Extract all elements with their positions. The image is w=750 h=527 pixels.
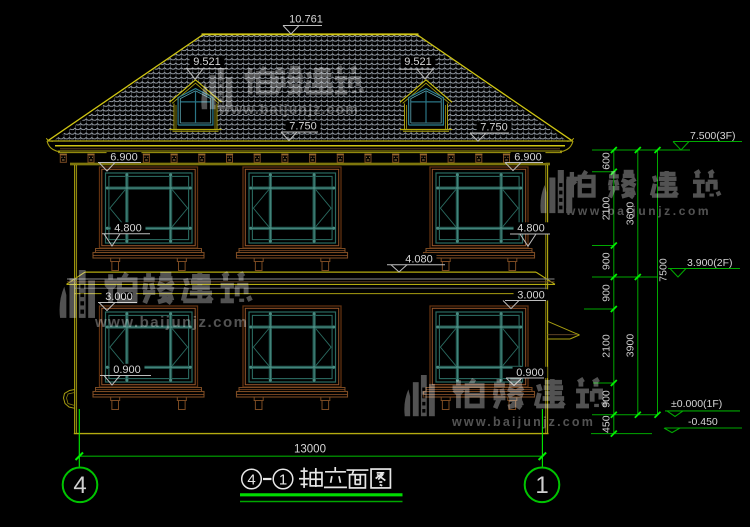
svg-text:7.500(3F): 7.500(3F)	[690, 130, 736, 142]
svg-text:7500: 7500	[658, 258, 670, 282]
svg-text:2100: 2100	[601, 334, 613, 358]
svg-text:7.750: 7.750	[289, 121, 317, 133]
svg-text:4.080: 4.080	[405, 253, 433, 265]
svg-text:6.900: 6.900	[110, 152, 138, 164]
svg-text:13000: 13000	[294, 444, 326, 456]
svg-text:4.800: 4.800	[114, 222, 142, 234]
svg-text:1: 1	[279, 471, 287, 488]
svg-text:600: 600	[601, 152, 613, 170]
svg-text:±0.000(1F): ±0.000(1F)	[671, 398, 722, 410]
svg-text:0.900: 0.900	[113, 364, 141, 376]
svg-text:3.900(2F): 3.900(2F)	[687, 257, 733, 269]
svg-text:7.750: 7.750	[480, 122, 508, 134]
svg-text:4: 4	[73, 472, 86, 499]
svg-text:900: 900	[601, 252, 613, 270]
svg-text:1: 1	[535, 472, 548, 499]
svg-text:3.000: 3.000	[517, 289, 545, 301]
svg-text:0.900: 0.900	[516, 367, 544, 379]
svg-text:10.761: 10.761	[289, 14, 323, 26]
svg-text:9.521: 9.521	[404, 56, 432, 68]
svg-text:4.800: 4.800	[517, 222, 545, 234]
svg-text:450: 450	[601, 415, 613, 433]
svg-text:6.900: 6.900	[514, 152, 542, 164]
svg-text:3900: 3900	[625, 334, 637, 358]
svg-text:4: 4	[247, 471, 255, 488]
svg-text:9.521: 9.521	[193, 56, 221, 68]
svg-text:www.baijunjz.com: www.baijunjz.com	[451, 415, 595, 429]
svg-text:900: 900	[601, 284, 613, 302]
svg-text:www.baijunjz.com: www.baijunjz.com	[218, 101, 359, 117]
svg-text:www.baijunjz.com: www.baijunjz.com	[94, 314, 248, 331]
svg-text:www.baijunjz.com: www.baijunjz.com	[565, 204, 711, 218]
svg-text:-0.450: -0.450	[688, 416, 718, 428]
